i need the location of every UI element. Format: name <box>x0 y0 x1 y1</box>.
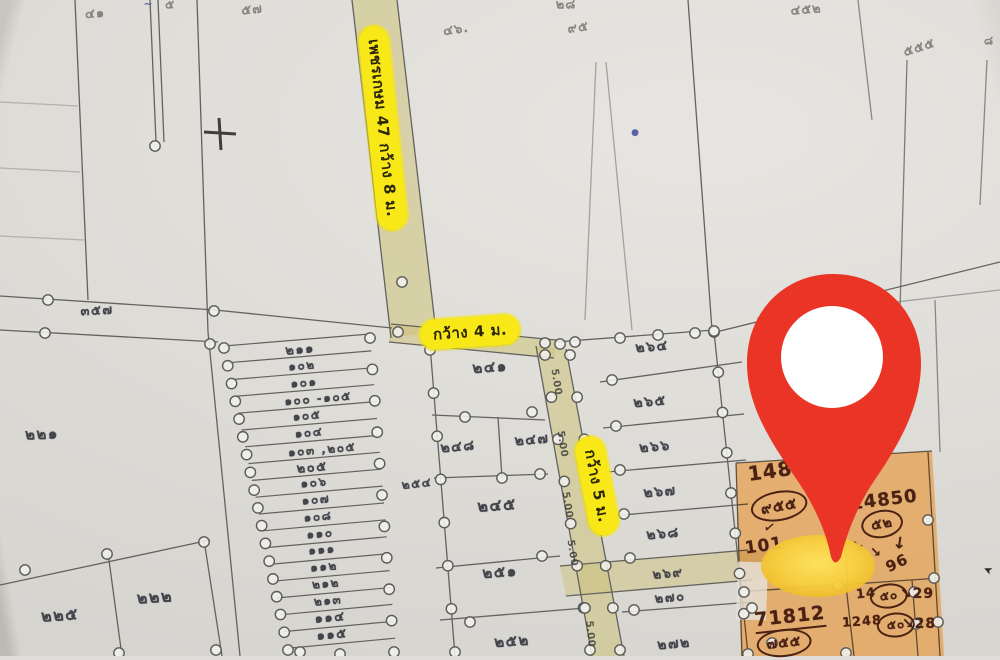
road-width-mark: 5.00 <box>559 491 574 519</box>
pencil-annotation: ๒๘ <box>556 0 577 15</box>
plot-number-label: ๒๖๘ <box>645 522 680 547</box>
plot-number-label: ๒๖๙ <box>652 561 685 585</box>
handwritten-note: 148 <box>746 456 794 486</box>
pencil-annotation: ๘ <box>984 32 994 51</box>
plot-number-label: ๒๔๘ <box>440 435 477 460</box>
handwritten-note: ↘ <box>870 546 882 561</box>
plot-number-label: ๒๗๐ <box>654 585 686 609</box>
road-width-mark: 5.00 <box>548 368 563 396</box>
handwritten-note: ๙๕๕ <box>748 486 809 525</box>
ink-mark: ➤ <box>981 562 995 578</box>
road-name-label: กว้าง 5 ม. <box>573 434 622 538</box>
plot-number-label: ๒๕๑ <box>482 559 519 585</box>
pencil-annotation: ๕๗ <box>240 0 264 21</box>
plot-number-label: ๓๕๗ <box>80 299 114 322</box>
handwritten-note: ↘ <box>851 537 865 555</box>
pencil-annotation: ๕๕๕ <box>900 32 937 62</box>
plot-number-label: ๑๑๕ <box>316 622 349 646</box>
scanned-land-plot-map: { "map": { "colors": { "paper": "#e0deda… <box>0 0 1000 656</box>
plot-number-label: ๒๒๒ <box>136 584 174 611</box>
road-name-label: เพชรเกษม 47 กว้าง 8 ม. <box>357 25 408 232</box>
plot-number-label: ๒๖๗ <box>643 480 678 505</box>
plot-number-label: ๒๒๕ <box>40 602 79 630</box>
pencil-annotation: ๔๖. <box>442 17 471 41</box>
plot-number-label: ๒๔๑ <box>472 354 509 380</box>
plot-number-label: ๒๕๔ <box>401 473 433 495</box>
plot-number-label: ๒๒๑ <box>25 421 60 446</box>
plot-number-label: ๒๖๖ <box>638 435 671 460</box>
plot-number-label: ๒๔๗ <box>514 428 551 453</box>
plot-number-label: ๒๗๒ <box>656 632 691 657</box>
ink-mark: ● <box>631 128 639 138</box>
plot-number-label: ๒๖๔ <box>634 335 669 360</box>
road-width-mark: 5.00 <box>564 539 579 567</box>
pencil-annotation: ๕ <box>165 0 175 15</box>
plot-number-label: ๒๖๕ <box>632 390 667 415</box>
plot-number-label: ๒๔๕ <box>477 492 518 520</box>
pencil-annotation: ๔๑ <box>84 2 106 24</box>
pencil-annotation: ๙๕ <box>566 15 590 39</box>
pencil-annotation: ๔๕๒ <box>790 0 823 21</box>
handwritten-note: ↘29 <box>900 586 934 602</box>
map-labels-layer: เพชรเกษม 47 กว้าง 8 ม.กว้าง 4 ม.กว้าง 5 … <box>0 0 1000 656</box>
road-width-mark: 5.00 <box>554 430 569 458</box>
plot-number-label: ๒๕๒ <box>493 628 530 654</box>
handwritten-note: 101 <box>744 533 785 558</box>
road-width-mark: 5.00 <box>583 620 597 648</box>
road-name-label: กว้าง 4 ม. <box>419 314 521 351</box>
handwritten-note: ↘28 <box>902 616 936 632</box>
ink-mark: ~ <box>143 0 152 11</box>
handwritten-note: 96 <box>883 550 911 576</box>
